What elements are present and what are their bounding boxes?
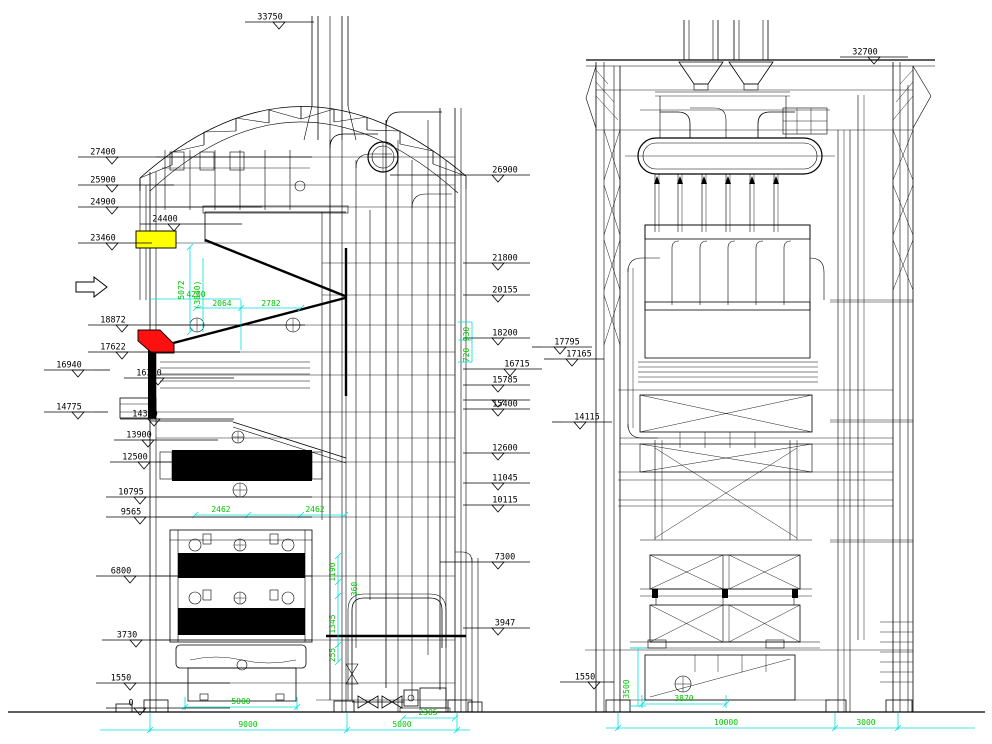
economizer-bank-3 (178, 608, 305, 635)
elevation-label: 33750 (257, 13, 283, 23)
elevation-label: 24400 (152, 215, 178, 225)
elevation-label: 10115 (492, 496, 518, 506)
downcomers-risers (654, 174, 779, 232)
elevation-marker: 20155 (463, 286, 530, 303)
front-right-elevation-markers: 2690021800201551820017795171651671515785… (390, 166, 612, 636)
elevation-label: 7300 (495, 553, 515, 563)
furnace (150, 206, 348, 463)
elevation-label: 1550 (111, 674, 131, 684)
elevation-label: 11045 (492, 474, 518, 484)
elevation-label: 27400 (90, 148, 116, 158)
steam-drum-side (625, 108, 835, 174)
elevation-marker: 1550 (560, 673, 614, 690)
side-elevation-markers: 1550 (560, 673, 614, 690)
main-tube-bank (628, 258, 824, 438)
dimension-text: 720 (462, 348, 471, 363)
chimney-flue (304, 16, 356, 140)
dimension-text: 10000 (714, 718, 738, 727)
downcomer-pipes (455, 552, 478, 712)
elevation-label: 12600 (492, 444, 518, 454)
dimension-text: 1190 (328, 562, 337, 581)
elevation-label: 15785 (492, 376, 518, 386)
drawing-canvas: 2740025900249002440023460188721762216940… (0, 0, 992, 744)
elevation-label: 12500 (122, 453, 148, 463)
elevation-label: 14300 (132, 410, 158, 420)
elevation-marker: 12600 (463, 444, 530, 461)
elevation-marker: 15785 (463, 376, 530, 393)
side-annex (585, 95, 913, 712)
elevation-marker: 33750 (245, 13, 314, 30)
dimension-text: 9000 (238, 720, 257, 729)
dimension-text: 2064 (212, 299, 231, 308)
elevation-label: 16715 (504, 360, 530, 370)
dimension-text: 3500 (622, 679, 631, 698)
dimension-text: 5000 (231, 697, 250, 706)
elevation-marker: 32700 (840, 48, 908, 65)
elevation-label: 3947 (495, 619, 515, 629)
dimension-text: 5072 (177, 280, 186, 299)
elevation-label: 9565 (121, 508, 141, 518)
elevation-marker: 16300 (124, 369, 234, 386)
elevation-label: 17622 (100, 343, 126, 353)
lower-x-panels (630, 555, 820, 648)
elevation-label: 32700 (852, 48, 878, 58)
elevation-label: 20155 (492, 286, 518, 296)
elevation-marker: 10115 (463, 496, 530, 513)
flue-stacks (640, 20, 830, 138)
steam-drum (295, 142, 398, 191)
elevation-label: 25900 (90, 176, 116, 186)
ground-line (8, 700, 985, 712)
elevation-label: 21800 (492, 254, 518, 264)
dimension-text: 4200 (186, 290, 205, 299)
feed-piping (346, 594, 446, 700)
dimension-text: 360 (350, 582, 359, 597)
dimension-text: 1345 (328, 614, 337, 633)
elevation-label: 23460 (90, 234, 116, 244)
top-steelwork (162, 150, 310, 210)
dimension-text: 3000 (856, 718, 875, 727)
elevation-label: 0 (128, 699, 133, 709)
ash-box-side (620, 640, 830, 700)
elevation-label: 24900 (90, 198, 116, 208)
economizer-bank-2 (178, 553, 305, 578)
elevation-label: 16940 (56, 361, 82, 371)
elevation-marker: 16940 (44, 361, 110, 378)
elevation-marker: 24400 (140, 215, 242, 232)
elevation-marker: 10795 (106, 488, 312, 505)
economizer-bank-1 (160, 431, 322, 497)
dimension-text: 2305 (418, 708, 437, 717)
elevation-label: 17795 (554, 338, 580, 348)
roof-truss (140, 106, 466, 300)
elevation-label: 17165 (566, 350, 592, 360)
elevation-label: 6800 (111, 567, 131, 577)
ash-hopper (176, 645, 306, 701)
dimension-text: 2782 (261, 299, 280, 308)
elevation-marker: 14775 (44, 403, 108, 420)
dimension-text: 255 (328, 648, 337, 663)
elevation-marker: 25900 (78, 176, 174, 193)
front-top-elevation-marker: 33750 (245, 13, 314, 30)
elevation-marker: 3947 (463, 619, 530, 636)
front-view (8, 16, 985, 712)
elevation-label: 18872 (100, 316, 126, 326)
elevation-label: 18200 (492, 329, 518, 339)
dimension-text: 3870 (674, 694, 693, 703)
dimension-text: 5000 (392, 720, 411, 729)
elevation-marker: 16715 (463, 360, 542, 377)
elevation-marker: 17165 (544, 350, 604, 367)
burner-block-highlight (136, 231, 176, 248)
flow-arrow (76, 277, 107, 297)
elevation-marker: 15400 (463, 400, 530, 417)
elevation-label: 3730 (117, 631, 137, 641)
dimension-text: 2462 (305, 505, 324, 514)
elevation-marker: 9565 (106, 508, 312, 525)
elevation-label: 14775 (56, 403, 82, 413)
elevation-marker: 14115 (552, 413, 612, 430)
side-top-elevation-marker: 32700 (840, 48, 908, 65)
boiler-general-arrangement: 2740025900249002440023460188721762216940… (0, 0, 992, 744)
side-view (585, 20, 935, 712)
upper-tube-bank (645, 225, 810, 310)
dimension-lines (100, 244, 975, 733)
flue-elbow-highlight (138, 330, 174, 353)
elevation-marker: 7300 (440, 553, 530, 570)
elevation-marker: 11045 (463, 474, 530, 491)
elevation-label: 14115 (574, 413, 600, 423)
elevation-marker: 1550 (96, 674, 230, 691)
elevation-label: 26900 (492, 166, 518, 176)
elevation-label: 15400 (492, 400, 518, 410)
elevation-label: 13900 (126, 431, 152, 441)
mid-x-bracing (618, 395, 893, 540)
front-dimension-texts: 5072(3840)420020642782246224629307201190… (177, 280, 471, 729)
elevation-marker: 13900 (114, 431, 218, 448)
dimension-text: 930 (462, 327, 471, 342)
elevation-marker: 21800 (463, 254, 530, 271)
elevation-label: 10795 (118, 488, 144, 498)
elevation-label: 1550 (575, 673, 595, 683)
elevation-marker: 18200 (463, 329, 530, 346)
piping-columns (326, 108, 466, 712)
elevation-label: 16300 (136, 369, 162, 379)
dimension-text: 2462 (211, 505, 230, 514)
